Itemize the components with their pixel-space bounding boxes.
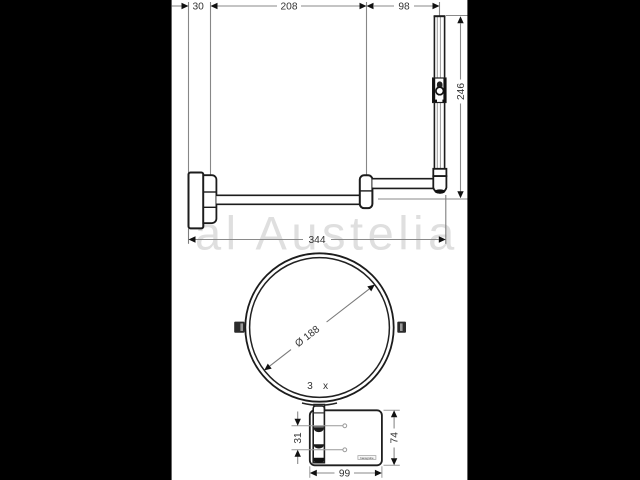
svg-text:208: 208 (281, 2, 298, 13)
svg-text:x: x (323, 381, 328, 392)
svg-text:30: 30 (193, 2, 205, 13)
svg-text:246: 246 (456, 83, 467, 100)
svg-text:hansgrohe: hansgrohe (360, 456, 374, 460)
svg-text:74: 74 (390, 432, 401, 444)
svg-text:al Austelia: al Austelia (195, 207, 459, 260)
svg-text:3: 3 (307, 381, 313, 392)
svg-text:31: 31 (293, 432, 304, 444)
svg-text:344: 344 (309, 235, 326, 246)
svg-text:99: 99 (339, 469, 351, 480)
svg-text:98: 98 (398, 2, 410, 13)
